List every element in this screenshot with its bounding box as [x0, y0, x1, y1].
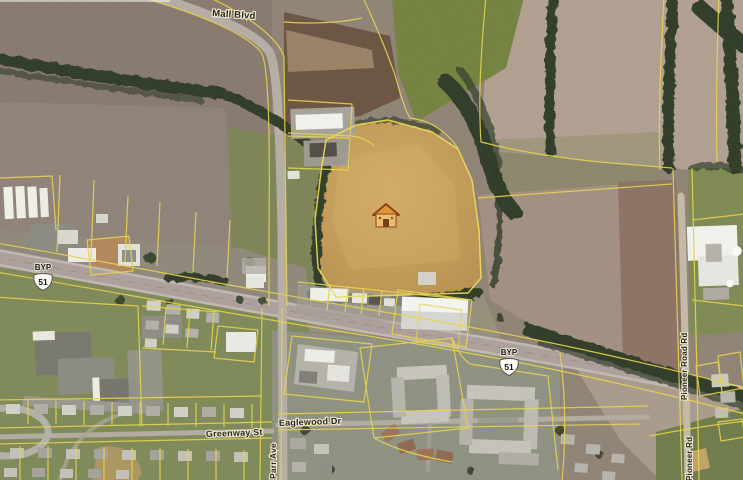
bypass-banner-text: BYP — [35, 263, 52, 272]
route-number-text: 51 — [38, 277, 48, 287]
scan-edge — [0, 0, 170, 2]
label-parr-ave: Parr Ave — [268, 443, 278, 479]
label-pioneer-road-rd: Pioneer Road Rd — [680, 333, 689, 400]
photo-grain-overlay — [0, 0, 743, 480]
map-canvas[interactable]: BYP 51 BYP 51 Mall Blvd Greenway St Eagl… — [0, 0, 743, 480]
label-pioneer-rd: Pioneer Rd — [685, 437, 694, 480]
route-shield-byp51-east: BYP 51 — [500, 348, 519, 376]
bypass-banner-text: BYP — [501, 348, 518, 357]
route-number-text: 51 — [504, 362, 514, 372]
route-shield-byp51-west: BYP 51 — [34, 263, 53, 291]
aerial-map[interactable]: BYP 51 BYP 51 Mall Blvd Greenway St Eagl… — [0, 0, 743, 480]
label-greenway-st: Greenway St — [206, 427, 263, 439]
